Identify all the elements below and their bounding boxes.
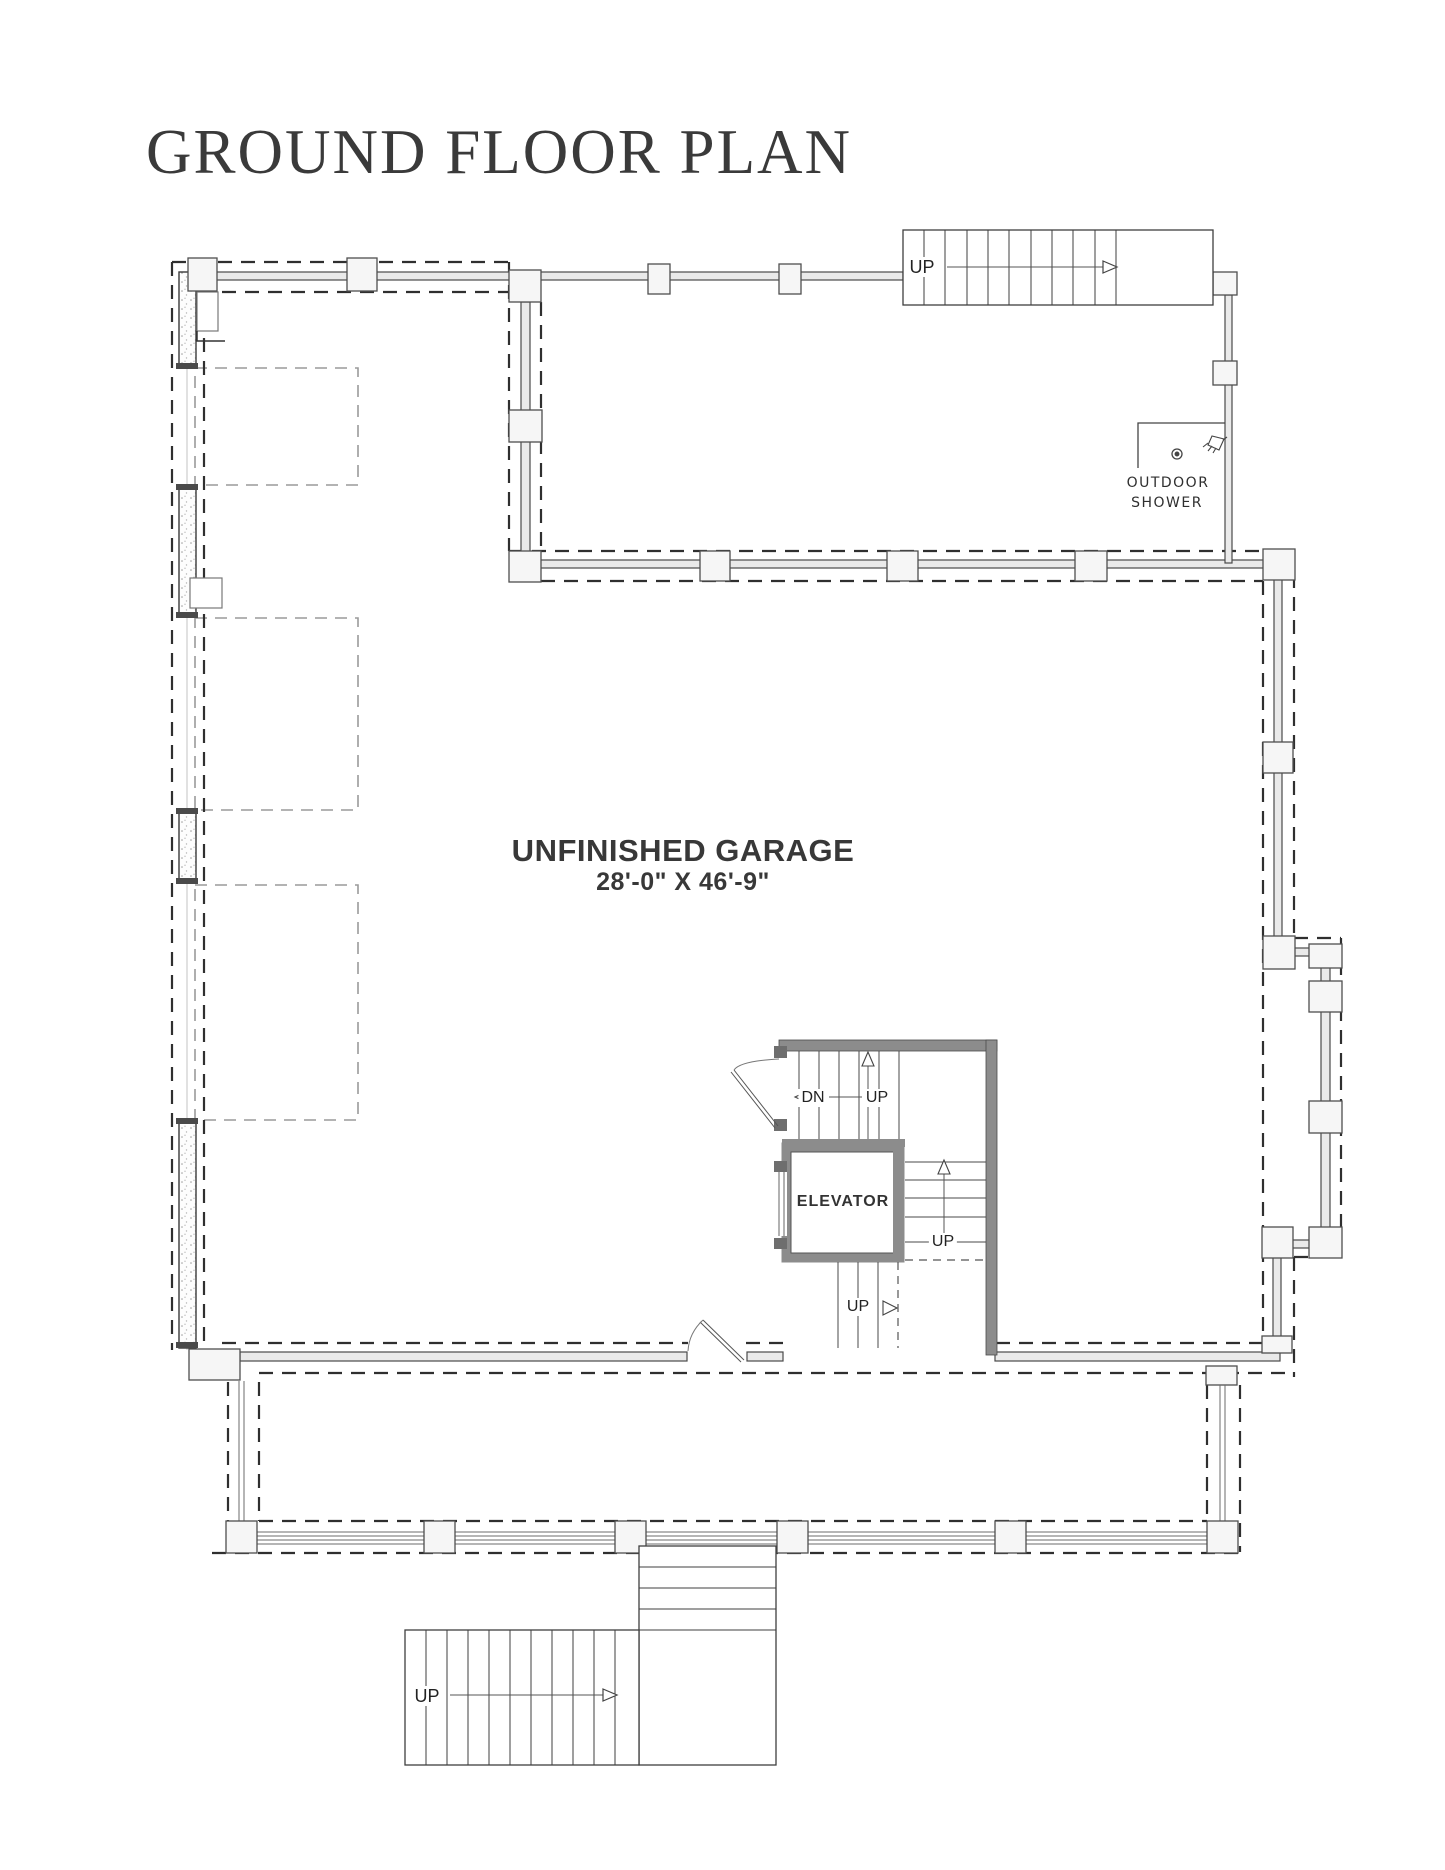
room-dimensions-label: 28'-0" X 46'-9" [593,869,773,896]
garage-entry-door-swing [688,1320,744,1362]
floor-plan-drawing [0,0,1445,1870]
outdoor-shower-label-line1: OUTDOOR [1124,475,1213,491]
floor-plan-page: GROUND FLOOR PLAN UNFINISHED GARAGE 28'-… [0,0,1445,1870]
structural-piers [188,258,1342,1385]
porch [226,1381,1238,1553]
upper-exterior-stair [903,230,1213,305]
wall-window-detail [197,292,218,331]
core-up-label: UP [863,1089,891,1107]
door-track-box [195,885,358,1120]
core-lower-flight-up-label: UP [844,1298,872,1316]
up-arrow-icon [883,1301,897,1315]
outdoor-shower [1138,423,1227,468]
core-door-swing [731,1059,779,1128]
core-mid-flight-up-label: UP [929,1233,957,1251]
door-track-box [195,618,358,810]
wall-detail-line [197,331,225,341]
overhead-door-dashed-boxes [195,368,358,1120]
page-title: GROUND FLOOR PLAN [146,116,852,189]
entry-stair-up-label: UP [411,1686,442,1706]
outdoor-shower-label-line2: SHOWER [1128,495,1206,511]
shower-head-icon [1203,436,1227,453]
up-arrow-icon [862,1052,874,1066]
elevator-label: ELEVATOR [794,1193,892,1211]
core-dn-label: DN [798,1089,827,1107]
room-name-label: UNFINISHED GARAGE [509,834,858,867]
drain-icon [1175,452,1179,456]
west-wall-segments [176,272,225,1350]
wall-window-detail [190,578,222,608]
entry-stair [405,1546,776,1765]
exterior-walls [190,272,1330,1361]
upper-stair-up-label: UP [906,257,937,277]
door-track-box [195,368,358,485]
